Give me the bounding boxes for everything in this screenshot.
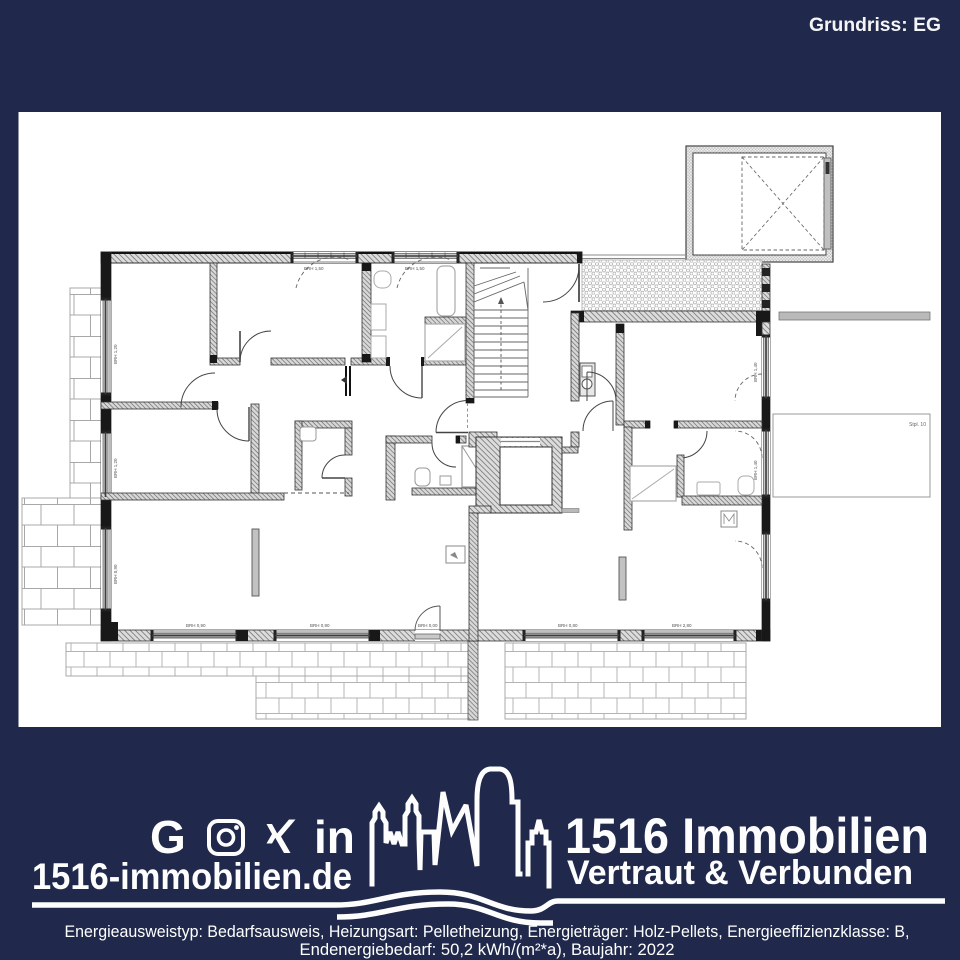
- svg-text:BRH 0,90: BRH 0,90: [113, 564, 118, 584]
- svg-text:BRH 0,00: BRH 0,00: [418, 623, 438, 628]
- svg-text:BRH 1,20: BRH 1,20: [113, 344, 118, 364]
- svg-text:BRH 1,50: BRH 1,50: [304, 266, 324, 271]
- svg-text:1516-immobilien.de: 1516-immobilien.de: [32, 856, 352, 897]
- svg-text:Grundriss: EG: Grundriss: EG: [809, 14, 941, 36]
- svg-text:BRH 0,90: BRH 0,90: [310, 623, 330, 628]
- svg-text:Endenergiebedarf: 50,2 kWh/(m²: Endenergiebedarf: 50,2 kWh/(m²*a), Bauja…: [300, 941, 675, 959]
- svg-text:BRH 1,40: BRH 1,40: [753, 362, 758, 382]
- svg-text:Stpl. 10: Stpl. 10: [909, 422, 926, 428]
- svg-text:BRH 1,20: BRH 1,20: [113, 458, 118, 478]
- svg-text:BRH 0,90: BRH 0,90: [186, 623, 206, 628]
- svg-text:Vertraut & Verbunden: Vertraut & Verbunden: [567, 854, 913, 892]
- svg-text:BRH 2,80: BRH 2,80: [672, 623, 692, 628]
- svg-text:BRH 0,80: BRH 0,80: [558, 623, 578, 628]
- svg-text:BRH 1,50: BRH 1,50: [405, 266, 425, 271]
- svg-text:Energieausweistyp: Bedarfsausw: Energieausweistyp: Bedarfsausweis, Heizu…: [65, 923, 910, 941]
- svg-text:BRH 1,40: BRH 1,40: [753, 460, 758, 480]
